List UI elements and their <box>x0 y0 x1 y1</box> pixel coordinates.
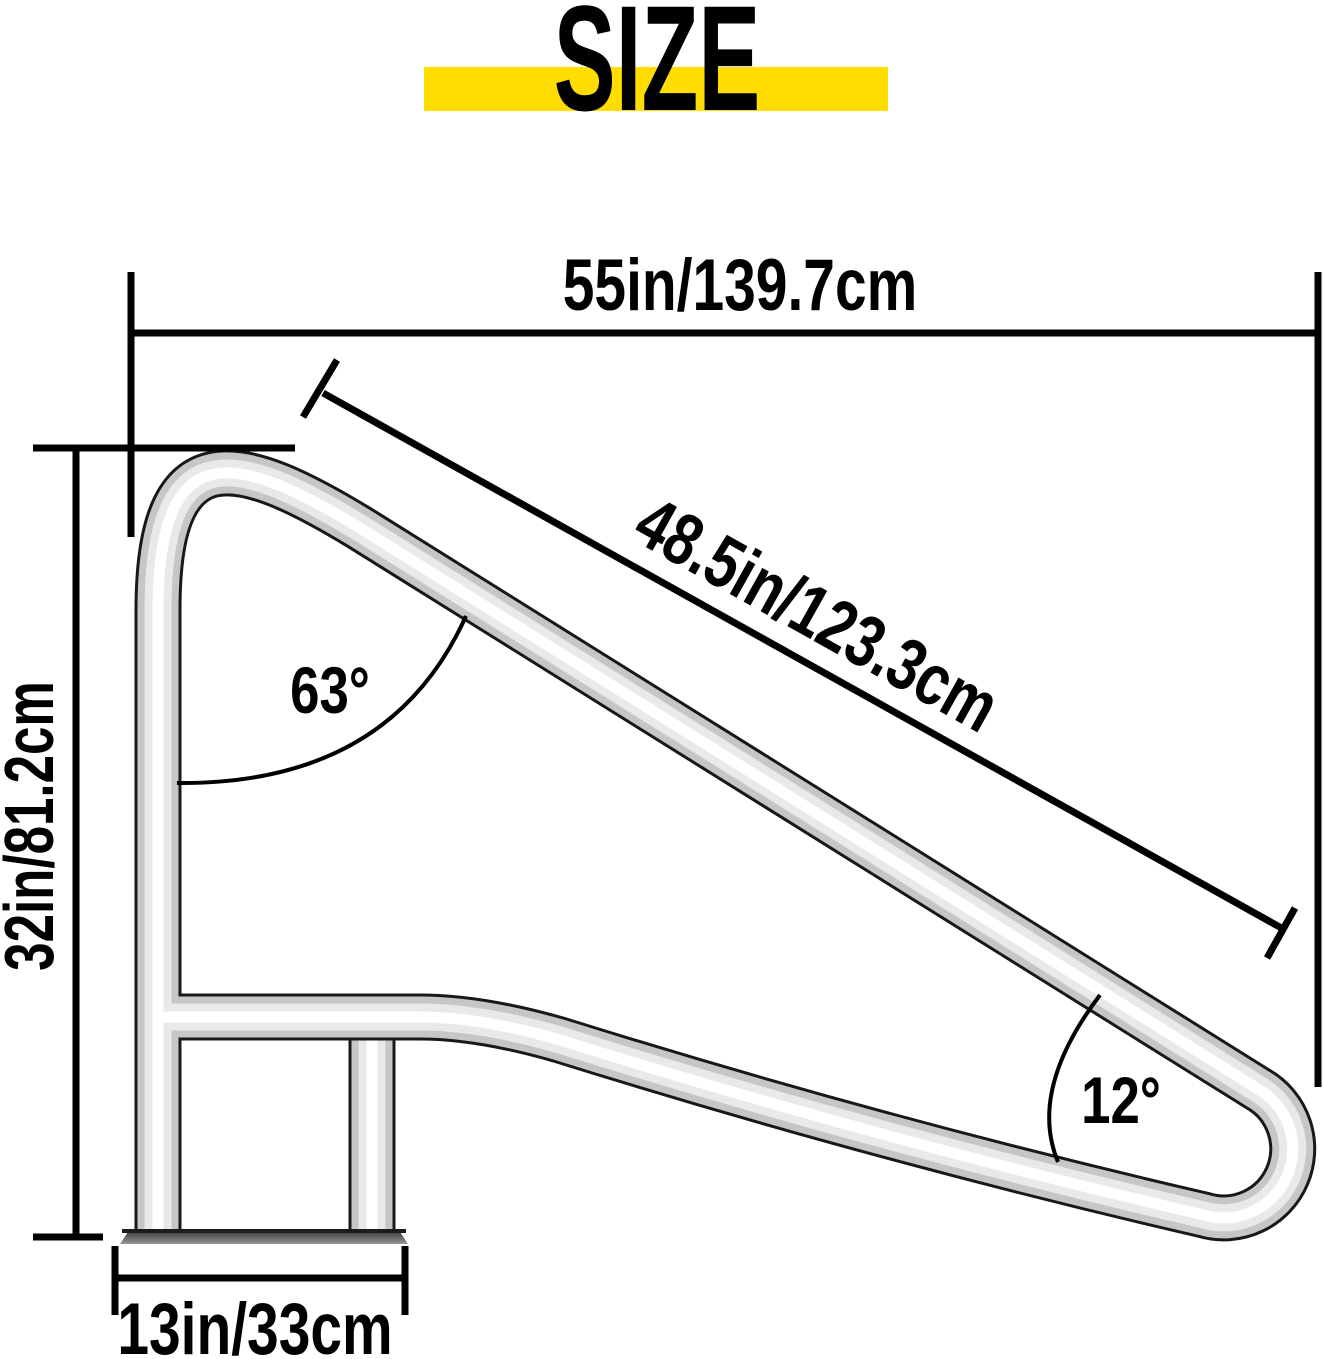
base-width-dimension: 13in/33cm <box>115 1246 405 1359</box>
base-width-dimension-label: 13in/33cm <box>117 1288 392 1359</box>
size-diagram: SIZE 55in/139.7cm <box>0 0 1323 1359</box>
title-block: SIZE <box>424 0 888 142</box>
handrail-dimension-drawing: SIZE 55in/139.7cm <box>0 0 1323 1359</box>
handrail-base-plate <box>120 1229 408 1244</box>
rail-length-dimension-line <box>323 393 1285 930</box>
rail-length-dimension: 48.5in/123.3cm <box>303 360 1295 958</box>
rail-length-start-tick <box>303 360 337 417</box>
top-angle-label: 63° <box>290 653 370 727</box>
top-width-dimension-label: 55in/139.7cm <box>563 244 917 325</box>
top-angle-annotation: 63° <box>177 616 466 783</box>
height-dimension-label: 32in/81.2cm <box>0 681 68 971</box>
rail-length-end-tick <box>1267 908 1295 958</box>
bottom-angle-label: 12° <box>1081 1063 1161 1137</box>
size-title: SIZE <box>554 0 761 142</box>
